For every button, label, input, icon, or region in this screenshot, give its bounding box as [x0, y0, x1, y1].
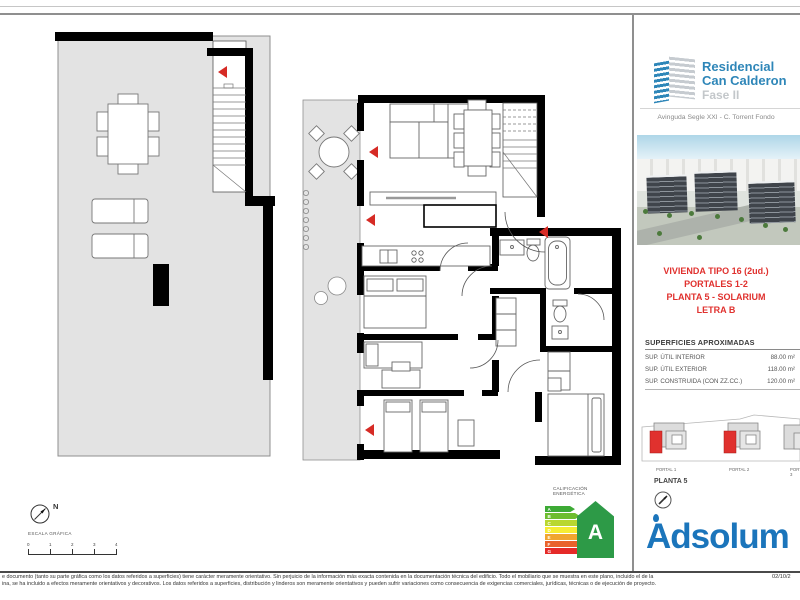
door-swing-arcs — [440, 212, 604, 392]
development-name-line1: Residencial — [702, 60, 798, 74]
portal-2-footprint — [724, 423, 760, 453]
floor-label: PLANTA 5 — [654, 478, 687, 485]
bathroom-2-and-wardrobe — [496, 298, 568, 346]
bedroom-2 — [364, 342, 422, 388]
scale-number: 4 — [115, 542, 118, 547]
energy-rating-letter: A — [588, 521, 603, 545]
energy-rating-label: CALIFICACIÓN ENERGÉTICA A B C D E F G A — [545, 486, 621, 562]
aerial-render-image — [637, 135, 800, 245]
surface-row: SUP. ÚTIL INTERIOR 88.00 m² — [645, 354, 795, 361]
plan-date: 02/10/2 — [772, 574, 791, 580]
portal-2-label: PORTAL 2 — [729, 467, 749, 472]
scale-number: 3 — [93, 542, 96, 547]
portal-1-footprint — [650, 423, 686, 453]
plan-sheet: CALIFICACIÓN ENERGÉTICA A B C D E F G A … — [0, 0, 800, 600]
sidebar-separator — [640, 108, 800, 109]
adsolum-logo: Adsolum — [646, 517, 789, 557]
bathroom-1 — [500, 237, 570, 289]
development-name-line2: Can Calderon — [702, 74, 798, 88]
energy-bar-a: A — [545, 506, 575, 512]
scale-tick — [116, 549, 117, 555]
apartment-staircase — [503, 103, 537, 197]
energy-bar-b: B — [545, 513, 580, 519]
bedroom-3 — [384, 400, 474, 452]
surfaces-rule — [645, 349, 800, 350]
unit-info: VIVIENDA TIPO 16 (2ud.) PORTALES 1-2 PLA… — [632, 265, 800, 317]
kitchen — [362, 192, 496, 266]
unit-type: VIVIENDA TIPO 16 (2ud.) — [632, 265, 800, 278]
surface-label: SUP. ÚTIL INTERIOR — [645, 354, 705, 361]
surface-value: 118.00 m² — [768, 366, 795, 373]
surface-label: SUP. CONSTRUIDA (CON ZZ.CC.) — [645, 378, 742, 385]
surface-value: 88.00 m² — [771, 354, 795, 361]
apartment-balcony — [303, 100, 360, 460]
surface-value: 120.00 m² — [767, 378, 795, 385]
scale-number: 2 — [71, 542, 74, 547]
scale-tick — [50, 549, 51, 555]
building-logo-icon — [652, 58, 696, 104]
living-room-furniture — [390, 100, 500, 176]
north-compass-icon — [654, 491, 672, 509]
north-compass-icon — [30, 504, 50, 524]
surfaces-title: SUPERFICIES APROXIMADAS — [645, 338, 755, 347]
portal-3-label: PORTAL 3 — [790, 467, 800, 477]
portal-3-footprint — [784, 425, 800, 449]
disclaimer-line-2: ina, se ha incluido a efectos meramente … — [2, 581, 772, 587]
unit-portales: PORTALES 1-2 — [632, 278, 800, 291]
site-location-plan — [636, 411, 800, 467]
scale-number: 1 — [49, 542, 52, 547]
surface-label: SUP. ÚTIL EXTERIOR — [645, 366, 707, 373]
energy-title: CALIFICACIÓN ENERGÉTICA — [553, 486, 588, 497]
compass: N — [30, 502, 100, 526]
scale-tick — [94, 549, 95, 555]
development-address: Avinguda Segle XXI - C. Torrent Fondo — [634, 114, 798, 121]
unit-letra: LETRA B — [632, 304, 800, 317]
surface-row: SUP. CONSTRUIDA (CON ZZ.CC.) 120.00 m² — [645, 378, 795, 385]
surfaces-rule — [645, 389, 800, 390]
compass-north-label: N — [53, 502, 58, 511]
portal-1-label: PORTAL 1 — [656, 467, 676, 472]
development-phase: Fase II — [702, 88, 798, 102]
terrace-staircase — [207, 41, 253, 198]
unit-planta: PLANTA 5 - SOLARIUM — [632, 291, 800, 304]
bedroom-1 — [364, 276, 426, 328]
surface-row: SUP. ÚTIL EXTERIOR 118.00 m² — [645, 366, 795, 373]
scale-tick — [72, 549, 73, 555]
disclaimer-line-1: e documento (tanto su parte gráfica como… — [2, 574, 760, 580]
scale-tick — [28, 549, 29, 555]
graphic-scale: ESCALA GRÁFICA 0 1 2 3 4 — [28, 531, 158, 561]
development-logo: Residencial Can Calderon Fase II — [702, 60, 798, 102]
scale-number: 0 — [27, 542, 30, 547]
scale-title: ESCALA GRÁFICA — [28, 531, 72, 536]
master-bedroom — [548, 352, 604, 456]
title-block-sidebar: Residencial Can Calderon Fase II Avingud… — [632, 15, 800, 571]
